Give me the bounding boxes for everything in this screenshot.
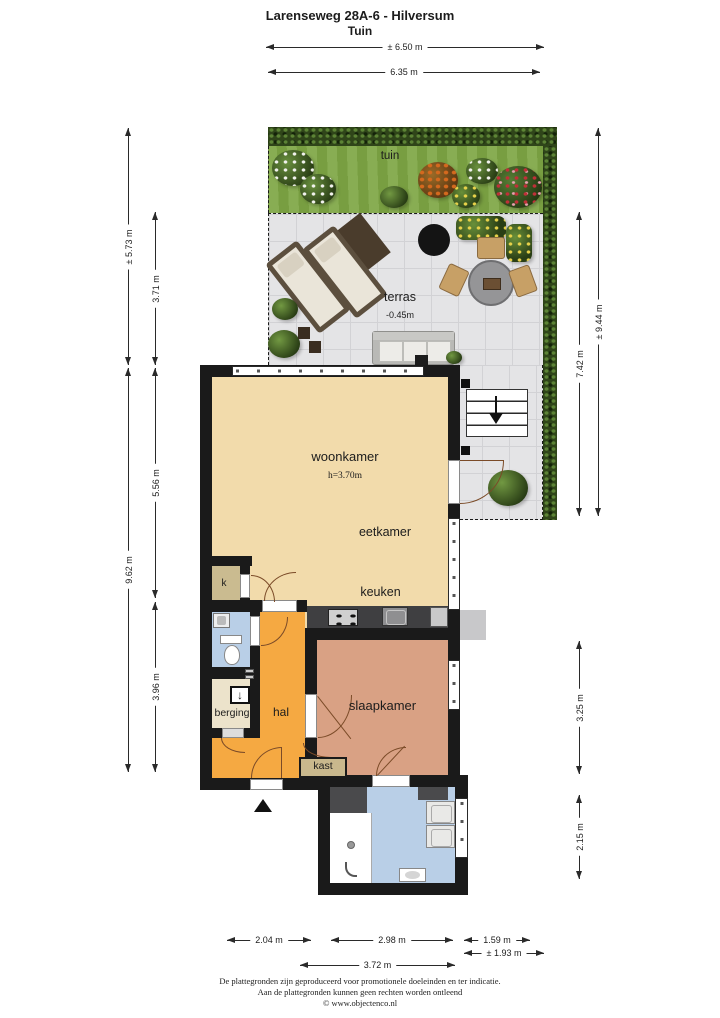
room-label-eetkamer: eetkamer xyxy=(335,525,435,539)
dim-left-573: ± 5.73 m xyxy=(128,128,129,365)
room-label-woonkamer: woonkamer xyxy=(280,449,410,464)
terrace-door-opening xyxy=(448,460,460,504)
dim-label: ± 1.93 m xyxy=(482,948,527,958)
terras-level-label: -0.45m xyxy=(350,310,450,320)
footer-copyright: © www.objectenco.nl xyxy=(0,998,720,1008)
dim-left-396: 3.96 m xyxy=(155,602,156,772)
dim-bottom-298: 2.98 m xyxy=(331,940,453,941)
shower-drain-icon xyxy=(347,841,355,849)
ceiling-height-label: h=3.70m xyxy=(280,471,410,481)
fence-post xyxy=(461,379,470,388)
page-title: Larenseweg 28A-6 - Hilversum xyxy=(0,8,720,23)
dim-label: ± 5.73 m xyxy=(124,224,134,269)
footer-disclaimer-1: De plattegronden zijn geproduceerd voor … xyxy=(0,976,720,986)
wall-bath-bottom xyxy=(318,883,468,895)
sofa xyxy=(372,331,455,365)
dim-bottom-159: 1.59 m xyxy=(464,940,530,941)
stairs-arrow-stem xyxy=(495,396,497,414)
window-slaapkamer xyxy=(448,660,460,710)
toilet-tank xyxy=(220,635,242,644)
window-mullions xyxy=(460,802,463,854)
garden-chair xyxy=(477,237,505,259)
room-label-k: k xyxy=(214,578,234,589)
planter-box xyxy=(506,224,532,262)
dryer-icon xyxy=(426,825,455,848)
room-label-tuin: tuin xyxy=(340,150,440,162)
room-label-berging: berging xyxy=(206,707,258,719)
door-sill-toilet xyxy=(250,616,260,646)
dim-label: 3.71 m xyxy=(151,270,161,308)
dim-right-215: 2.15 m xyxy=(579,795,580,879)
dim-label: 7.42 m xyxy=(575,345,585,383)
flower-bush xyxy=(300,174,336,204)
door-leaf xyxy=(281,747,282,778)
dim-label: 5.56 m xyxy=(151,464,161,502)
fridge xyxy=(430,607,448,627)
window-bathroom xyxy=(455,798,468,858)
dim-label: 2.04 m xyxy=(250,935,288,945)
dim-label: ± 9.44 m xyxy=(594,300,604,345)
shrub xyxy=(272,298,298,320)
dim-label: ± 6.50 m xyxy=(383,42,428,52)
wall-bath-left xyxy=(318,787,330,883)
door-sill-k xyxy=(240,574,250,598)
dim-label: 2.15 m xyxy=(575,818,585,856)
door-sill-berging xyxy=(222,728,244,738)
room-label-keuken: keuken xyxy=(333,585,428,599)
dim-label: 3.25 m xyxy=(575,689,585,727)
drum xyxy=(431,805,452,823)
basin-bowl xyxy=(217,616,226,625)
exterior-ledge xyxy=(460,610,486,640)
dim-label: 3.72 m xyxy=(359,960,397,970)
sofa-back xyxy=(373,332,454,340)
wall-left xyxy=(200,377,212,790)
dim-right-742: 7.42 m xyxy=(579,212,580,516)
dim-label: 2.98 m xyxy=(373,935,411,945)
dim-right-325: 3.25 m xyxy=(579,641,580,774)
dim-bottom-372: 3.72 m xyxy=(300,965,455,966)
north-arrow-icon xyxy=(254,799,272,812)
hand-basin-icon xyxy=(213,613,230,628)
basin-bowl xyxy=(405,871,420,879)
bathroom-counter xyxy=(418,787,448,800)
rose-bush xyxy=(494,166,542,208)
lounger-pillow xyxy=(313,236,342,263)
dim-top-635: 6.35 m xyxy=(268,72,540,73)
sofa-cushion xyxy=(379,341,403,362)
drum xyxy=(431,829,452,847)
dim-label: 3.96 m xyxy=(151,668,161,706)
stairs-down-arrow-icon xyxy=(489,413,503,424)
dim-label: 9.62 m xyxy=(124,551,134,589)
room-label-terras: terras xyxy=(350,290,450,304)
bathroom-sink-icon xyxy=(399,868,426,882)
lounger-pillow xyxy=(276,251,305,278)
dim-label: 1.59 m xyxy=(478,935,516,945)
sink-basin xyxy=(386,610,406,625)
meter-cupboard-icon: ↓ xyxy=(230,686,250,704)
window-eetkamer xyxy=(448,518,460,610)
garden-hedge-top xyxy=(268,127,557,147)
bbq-icon xyxy=(418,224,450,256)
dim-right-944: ± 9.44 m xyxy=(598,128,599,516)
flower-bush xyxy=(466,158,498,184)
shrub xyxy=(380,186,408,208)
floorplan-canvas: Larenseweg 28A-6 - Hilversum Tuin ± 6.50… xyxy=(0,0,720,1018)
plant-pot xyxy=(309,341,321,353)
dim-left-962: 9.62 m xyxy=(128,368,129,772)
dim-label: 6.35 m xyxy=(385,67,423,77)
toilet-bowl-icon xyxy=(224,645,240,665)
dim-left-371: 3.71 m xyxy=(155,212,156,365)
room-label-slaapkamer: slaapkamer xyxy=(317,698,448,713)
dim-left-556: 5.56 m xyxy=(155,368,156,598)
potted-plant xyxy=(446,351,462,364)
kitchen-sink-icon xyxy=(382,607,408,626)
fence-post xyxy=(461,446,470,455)
bathroom-counter xyxy=(330,787,367,813)
yellow-bush xyxy=(452,184,480,208)
footer-disclaimer-2: Aan de plattegronden kunnen geen rechten… xyxy=(0,987,720,997)
page-subtitle: Tuin xyxy=(0,24,720,38)
window-mullions xyxy=(453,522,456,606)
meter-box xyxy=(245,669,254,673)
front-door-sill xyxy=(250,779,283,790)
dim-bottom-193: ± 1.93 m xyxy=(464,953,544,954)
wall-keuken-slaapkamer xyxy=(305,628,460,640)
dim-bottom-204: 2.04 m xyxy=(227,940,311,941)
door-sill-bathroom xyxy=(372,775,410,787)
table-tray xyxy=(483,278,501,290)
shrub xyxy=(268,330,300,358)
door-sill-slaapkamer xyxy=(305,694,317,738)
plant-pot xyxy=(298,327,310,339)
washing-machine-icon xyxy=(426,801,455,824)
room-label-hal: hal xyxy=(258,705,304,719)
stove-icon xyxy=(328,609,358,626)
meter-box xyxy=(245,675,254,679)
window-woonkamer-top xyxy=(232,366,424,376)
dim-top-650: ± 6.50 m xyxy=(266,47,544,48)
window-mullions xyxy=(236,370,420,373)
window-mullions xyxy=(453,664,456,706)
room-label-kast: kast xyxy=(299,760,347,772)
garden-hedge-right xyxy=(543,146,557,520)
